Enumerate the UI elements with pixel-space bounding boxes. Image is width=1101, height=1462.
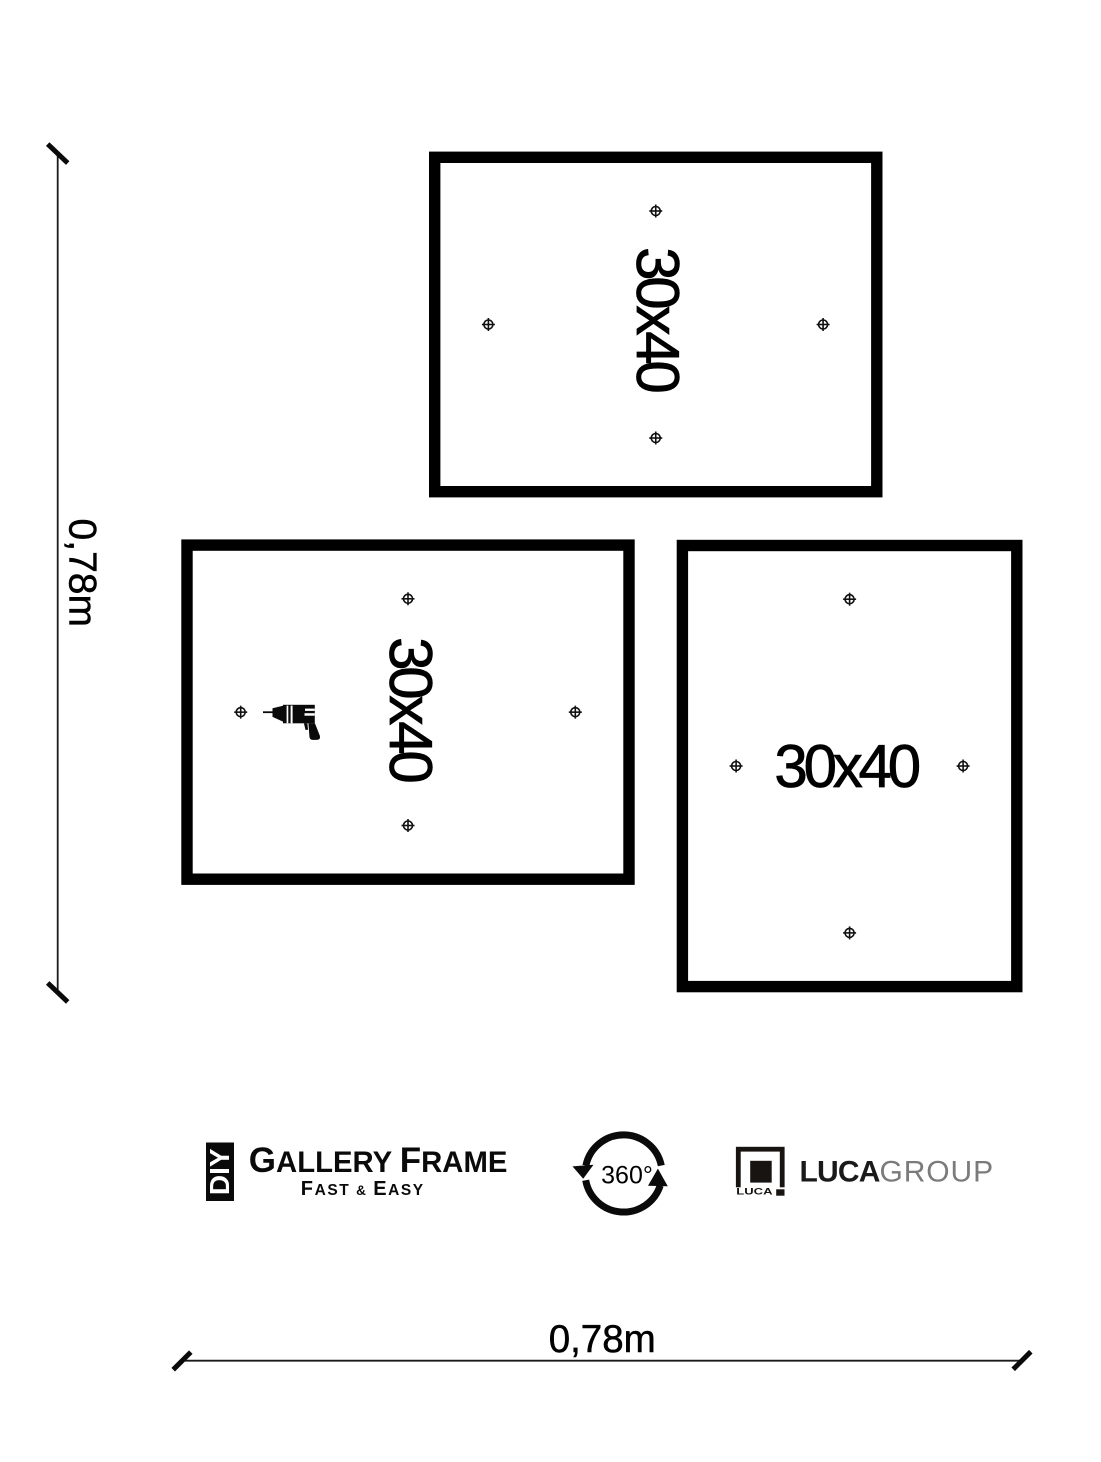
svg-text:30x40: 30x40 [774, 733, 919, 800]
svg-text:DIY: DIY [204, 1148, 235, 1195]
svg-text:GROUP: GROUP [880, 1155, 995, 1188]
svg-text:0,78m: 0,78m [549, 1318, 656, 1361]
svg-text:360°: 360° [601, 1162, 653, 1190]
svg-text:GALLERY FRAME: GALLERY FRAME [249, 1141, 508, 1180]
svg-text:LUCA: LUCA [800, 1155, 880, 1188]
svg-text:LUCA: LUCA [736, 1187, 772, 1198]
svg-text:0,78m: 0,78m [60, 519, 103, 627]
svg-text:30x40: 30x40 [377, 637, 444, 782]
svg-text:30x40: 30x40 [624, 247, 691, 392]
